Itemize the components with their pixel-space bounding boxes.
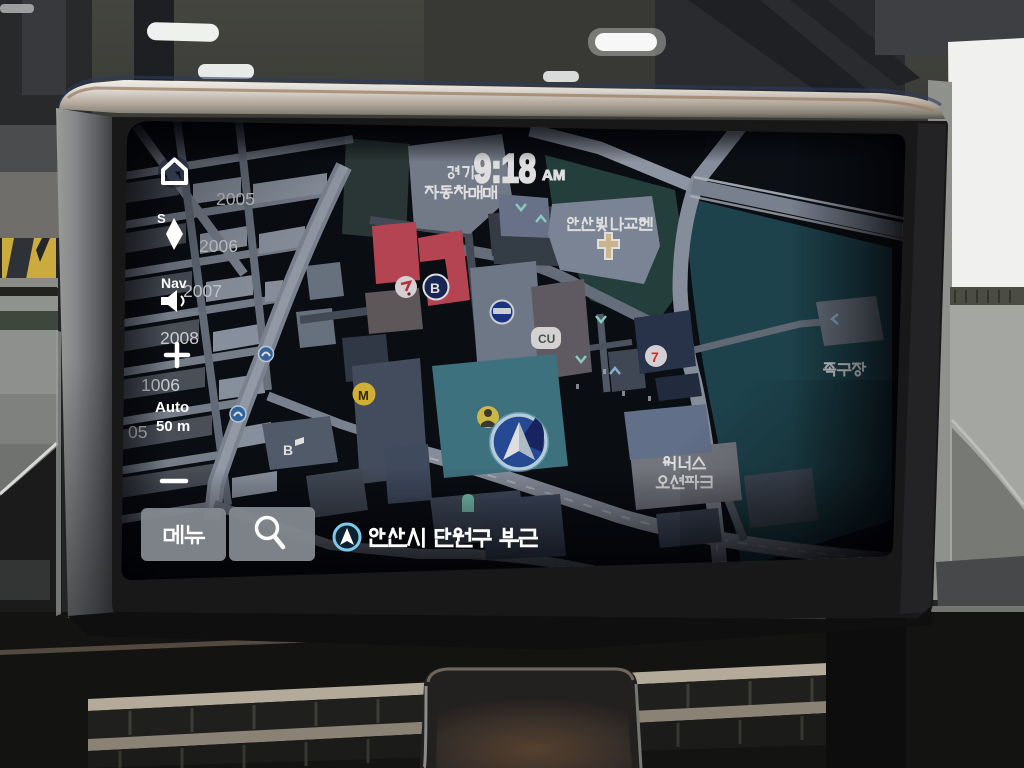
svg-text:Nav: Nav xyxy=(161,275,187,291)
svg-text:Auto: Auto xyxy=(155,399,189,416)
svg-text:S: S xyxy=(157,211,166,226)
svg-text:50 m: 50 m xyxy=(156,418,190,435)
